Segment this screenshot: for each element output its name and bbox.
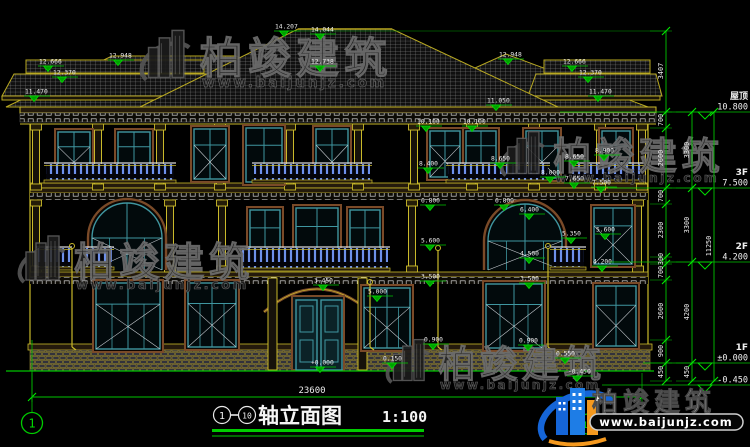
level-marker-value: 8.650: [491, 156, 510, 163]
level-marker-value: 7.500: [592, 180, 611, 187]
level-marker-value: 3.450: [314, 278, 333, 285]
level-marker-value: 8.000: [541, 170, 560, 177]
level-marker-value: 12.666: [39, 59, 62, 66]
axis-number: 1: [28, 417, 35, 431]
level-marker-value: 5.600: [596, 227, 615, 234]
column: [407, 200, 418, 272]
level-marker-value: 7.650: [565, 176, 584, 183]
level-marker-value: 0.150: [383, 356, 402, 363]
level-marker-value: 14.207: [275, 24, 298, 31]
level-marker-value: 10.100: [463, 119, 486, 126]
level-marker-value: 8.650: [565, 154, 584, 161]
chain-dimension-value: 4200: [683, 304, 691, 320]
level-marker-value: 5.350: [562, 231, 581, 238]
watermark-url: www.baijunjz.com: [76, 278, 249, 293]
chain-dimension-value: 900: [657, 345, 665, 357]
level-marker-value: 6.800: [495, 198, 514, 205]
level-marker-value: 14.044: [311, 27, 334, 34]
floor-level-value: ±0.000: [717, 354, 748, 364]
floor-level-name: 1F: [736, 343, 748, 353]
level-marker-value: 12.370: [53, 70, 76, 77]
floor-level-value: 10.800: [717, 103, 748, 113]
column: [409, 124, 420, 190]
level-marker-value: 4.500: [520, 251, 539, 258]
column: [31, 124, 42, 190]
chain-dimension-value: 3300: [683, 142, 691, 158]
title-underline: [212, 429, 424, 432]
window: [593, 283, 639, 349]
level-marker-value: 8.900: [595, 148, 614, 155]
level-marker-value: 12.948: [499, 52, 522, 59]
level-marker-value: 12.370: [579, 70, 602, 77]
level-marker-value: 0.900: [519, 338, 538, 345]
chain-dimension-value: 3407: [657, 63, 665, 79]
level-marker-value: 0.550: [556, 351, 575, 358]
level-marker-value: 4.200: [593, 259, 612, 266]
level-marker: 5.600: [420, 238, 446, 251]
level-marker-value: 5.600: [421, 238, 440, 245]
logo-swoosh-orange-icon: [549, 439, 606, 445]
level-marker-value: 10.100: [417, 119, 440, 126]
floor-level-value: 7.500: [722, 179, 748, 189]
cad-viewport: 柏竣建筑 www.baijunjz.com 柏竣建筑 www.baijunjz.…: [0, 0, 750, 447]
balustrade: [44, 163, 176, 183]
main-cornice: [20, 107, 656, 124]
watermark-mid-left: 柏竣建筑 www.baijunjz.com: [20, 236, 254, 293]
level-marker-value: -0.450: [568, 369, 591, 376]
elevation-drawing: 柏竣建筑 www.baijunjz.com 柏竣建筑 www.baijunjz.…: [0, 0, 750, 447]
downspout: [436, 246, 443, 351]
level-marker-value: 0.900: [424, 337, 443, 344]
drawing-scale: 1:100: [382, 408, 427, 426]
level-marker-value: 11.470: [25, 89, 48, 96]
chain-dimension-value: 11250: [705, 236, 713, 256]
chain-dimension-value: 2600: [657, 150, 665, 166]
level-marker-value: 12.738: [311, 59, 334, 66]
floor-level-name: 2F: [736, 242, 748, 252]
level-marker-value: 6.800: [421, 198, 440, 205]
title-axis-start: 1: [219, 411, 225, 422]
balustrade: [550, 247, 586, 270]
level-marker-value: 3.500: [421, 274, 440, 281]
windows: [55, 125, 639, 352]
level-marker-value: 11.050: [487, 98, 510, 105]
balustrade: [252, 163, 372, 183]
level-marker-value: 12.666: [563, 59, 586, 66]
level-marker-value: 5.000: [368, 289, 387, 296]
floor-level-name: 屋顶: [730, 91, 748, 102]
chain-dimension-value: 700: [657, 266, 665, 278]
floor-level-value: 4.200: [722, 253, 748, 263]
chain-dimension-value: 700: [657, 190, 665, 202]
watermark-url: www.baijunjz.com: [202, 75, 387, 91]
chain-dimension-value: 700: [657, 114, 665, 126]
window: [191, 126, 229, 182]
title-axis-end: 10: [242, 411, 252, 420]
logo-url-text: www.baijunjz.com: [599, 415, 732, 429]
level-marker-value: 11.470: [589, 89, 612, 96]
brand-logo[interactable]: 柏竣建筑 www.baijunjz.com: [541, 387, 743, 445]
level-marker-value: 8.400: [419, 161, 438, 168]
chain-dimension-value: 2300: [657, 222, 665, 238]
chain-dimension-value: 2600: [657, 303, 665, 319]
title-block: 1 10 轴立面图 1:100: [212, 404, 427, 436]
watermark-bottom: 柏竣建筑 www.baijunjz.com: [388, 340, 606, 392]
floor-level-value: -0.450: [717, 376, 748, 386]
floor-level-name: 3F: [736, 168, 748, 178]
watermark-logo-icon: [142, 30, 189, 79]
drawing-title: 轴立面图: [258, 404, 342, 428]
chain-dimension-value: 450: [683, 366, 691, 378]
watermark-logo-icon: [20, 236, 64, 282]
watermark-logo-icon: [502, 132, 544, 176]
level-marker-value: +0.000: [311, 360, 334, 367]
chain-dimension-value: 3300: [683, 217, 691, 233]
balustrade: [240, 247, 390, 271]
total-width-dimension: 23600: [298, 386, 325, 396]
level-marker-value: 12.948: [109, 53, 132, 60]
level-marker-value: 3.500: [520, 276, 539, 283]
level-marker-value: 6.400: [520, 207, 539, 214]
chain-dimension-value: 450: [657, 366, 665, 378]
chain-dimension-value: 300: [657, 253, 665, 265]
